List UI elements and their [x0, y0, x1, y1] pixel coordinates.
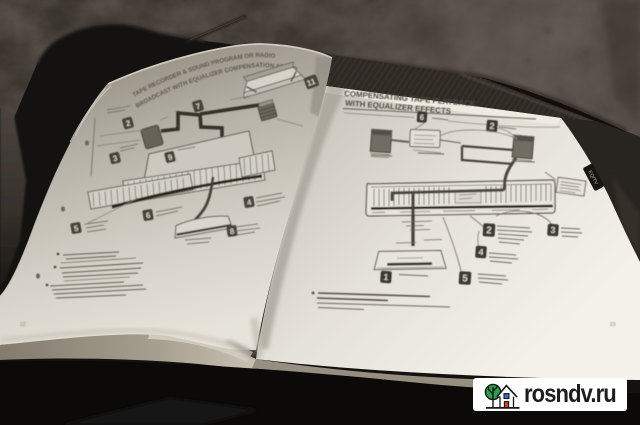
svg-text:rosndv.ru: rosndv.ru	[524, 380, 616, 408]
svg-text:22: 22	[20, 322, 26, 328]
svg-text:4: 4	[478, 247, 484, 257]
svg-text:3: 3	[550, 225, 556, 235]
svg-text:23: 23	[610, 322, 616, 328]
svg-text:2: 2	[489, 121, 495, 131]
svg-text:1: 1	[383, 272, 389, 282]
